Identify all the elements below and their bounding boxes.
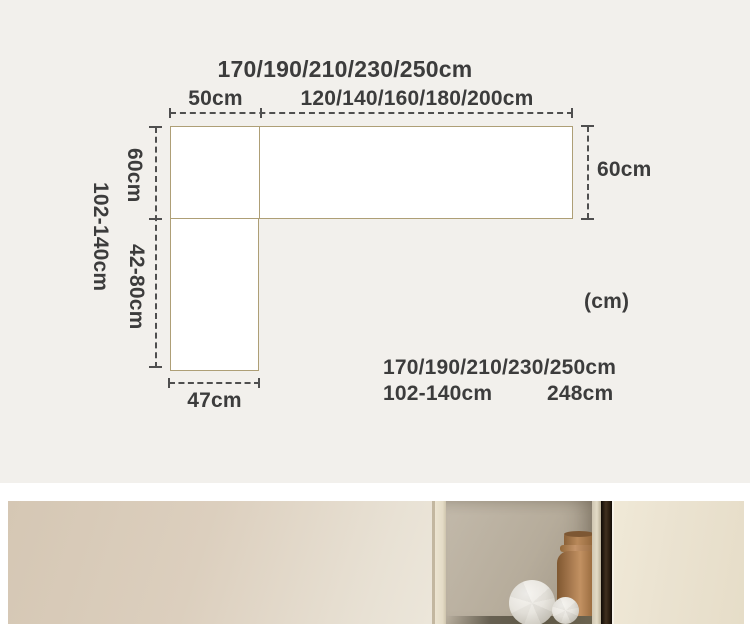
room-photo <box>8 501 744 624</box>
tick <box>581 218 594 220</box>
tick <box>258 378 260 388</box>
left-lower-depth-label: 42-80cm <box>124 236 148 338</box>
faceted-sphere-decor-small <box>552 597 579 624</box>
tick <box>149 218 162 220</box>
right-dimension-line <box>587 126 589 219</box>
left-upper-depth-label: 60cm <box>122 129 146 221</box>
top-left-segment-label: 50cm <box>170 87 261 111</box>
summary-width: 248cm <box>547 382 613 406</box>
desk-top-outline <box>170 126 573 219</box>
desk-side-outline <box>170 218 259 371</box>
summary-depth: 102-140cm <box>383 382 492 406</box>
right-depth-label: 60cm <box>597 158 652 182</box>
top-dimension-line <box>170 112 573 114</box>
photo-wall <box>8 501 432 624</box>
top-right-segment-label: 120/140/160/180/200cm <box>261 87 573 111</box>
product-dimension-image: 170/190/210/230/250cm 50cm 120/140/160/1… <box>0 0 750 624</box>
cabinet-door-edge <box>435 501 446 624</box>
tick <box>149 366 162 368</box>
tick <box>571 108 573 118</box>
tick <box>581 125 594 127</box>
tick <box>149 126 162 128</box>
tick <box>168 378 170 388</box>
tick <box>169 108 171 118</box>
door-gap-shadow <box>601 501 612 624</box>
summary-sizes: 170/190/210/230/250cm <box>383 356 616 380</box>
cabinet-door-panel <box>612 501 744 624</box>
tick <box>260 108 262 118</box>
dimension-diagram: 170/190/210/230/250cm 50cm 120/140/160/1… <box>0 0 750 483</box>
bottom-dimension-line <box>169 382 260 384</box>
desk-top-divider <box>259 126 260 219</box>
open-door-light-edge <box>592 501 601 624</box>
unit-note: (cm) <box>584 290 629 314</box>
bottom-width-label: 47cm <box>169 389 260 413</box>
left-dimension-line <box>155 127 157 368</box>
left-overall-depth-label: 102-140cm <box>88 176 112 298</box>
overall-width-label: 170/190/210/230/250cm <box>150 56 540 82</box>
faceted-sphere-decor-large <box>509 580 555 624</box>
